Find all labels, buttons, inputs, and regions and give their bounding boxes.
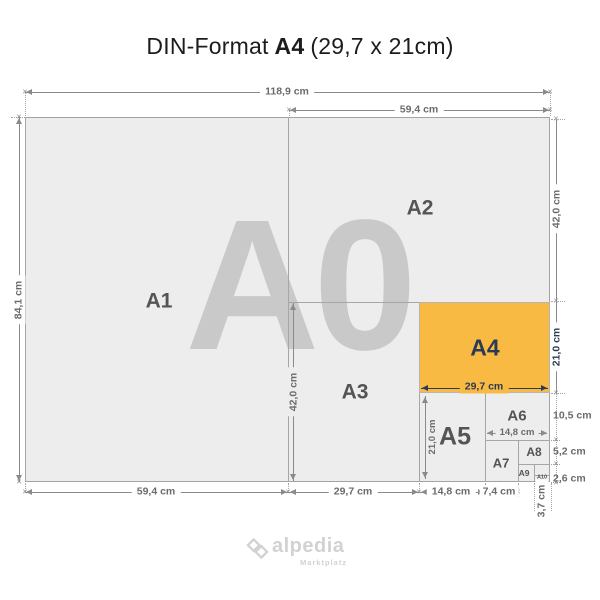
tick-mark: × (553, 436, 558, 445)
dimension-line-a5-height (425, 396, 426, 479)
dim-a6-width: 14,8 cm (496, 427, 539, 439)
title-size-text: (29,7 x 21cm) (310, 33, 453, 59)
dim-a5-height: 21,0 cm (427, 416, 439, 459)
arrowhead (541, 385, 547, 391)
dim-a9-height: 3,7 cm (535, 480, 548, 523)
brand-tagline: Marktplatz (300, 558, 347, 567)
dim-a7-width: 7,4 cm (480, 485, 519, 498)
dim-a3-width: 29,7 cm (329, 485, 378, 498)
divider-a1 (288, 117, 289, 482)
page-title: DIN-FormatA4(29,7 x 21cm) (0, 33, 600, 60)
dim-a5-width: 14,8 cm (427, 485, 476, 498)
dim-a0-height: 84,1 cm (12, 276, 25, 325)
logo: alpedia Marktplatz (246, 535, 386, 567)
format-label-a4: A4 (470, 337, 499, 360)
arrowhead (26, 489, 32, 495)
dim-a2-height: 42,0 cm (550, 185, 563, 234)
arrowhead (422, 397, 428, 403)
format-label-a2: A2 (407, 198, 434, 219)
arrowhead (290, 489, 296, 495)
format-label-a8: A8 (526, 446, 541, 458)
format-label-a6: A6 (507, 409, 526, 424)
dim-a8-height: 5,2 cm (553, 445, 586, 458)
dim-a2-width: 59,4 cm (395, 103, 444, 116)
arrowhead (290, 304, 296, 310)
arrowhead (487, 430, 493, 436)
dim-a0-width: 118,9 cm (260, 85, 314, 98)
arrowhead (541, 430, 547, 436)
extension-line (551, 483, 552, 511)
arrowhead (543, 89, 549, 95)
title-format-name: A4 (275, 33, 305, 59)
title-text: DIN-Format (146, 33, 268, 59)
format-label-a3: A3 (342, 382, 369, 403)
din-format-diagram: DIN-FormatA4(29,7 x 21cm) A0 A1 A2 A3 A4… (0, 0, 600, 600)
tick-mark: × (553, 389, 558, 398)
dim-a10-height: 2,6 cm (553, 472, 586, 485)
arrowhead (422, 385, 428, 391)
watermark-a0: A0 (185, 195, 411, 377)
tick-mark: × (553, 297, 558, 306)
arrowhead (290, 107, 296, 113)
format-label-a1: A1 (146, 291, 173, 312)
logo-diamonds-icon (246, 537, 269, 560)
arrowhead (16, 475, 22, 481)
dim-a1-width: 59,4 cm (132, 485, 181, 498)
arrowhead (16, 118, 22, 124)
brand-name: alpedia (272, 535, 344, 557)
dim-a4-width: 29,7 cm (460, 380, 509, 393)
arrowhead (543, 107, 549, 113)
format-label-a9: A9 (519, 469, 530, 478)
tick-mark: × (553, 460, 558, 469)
arrowhead (281, 489, 287, 495)
divider-a5 (485, 393, 486, 482)
arrowhead (26, 89, 32, 95)
dim-a6-height: 10,5 cm (553, 409, 592, 422)
format-label-a7: A7 (493, 457, 510, 470)
dim-a4-height: 21,0 cm (550, 323, 563, 372)
arrowhead (290, 474, 296, 480)
arrowhead (422, 472, 428, 478)
dim-a3-height: 42,0 cm (287, 368, 300, 417)
format-label-a5: A5 (439, 425, 471, 450)
arrowhead (412, 489, 418, 495)
tick-mark: × (553, 115, 558, 124)
